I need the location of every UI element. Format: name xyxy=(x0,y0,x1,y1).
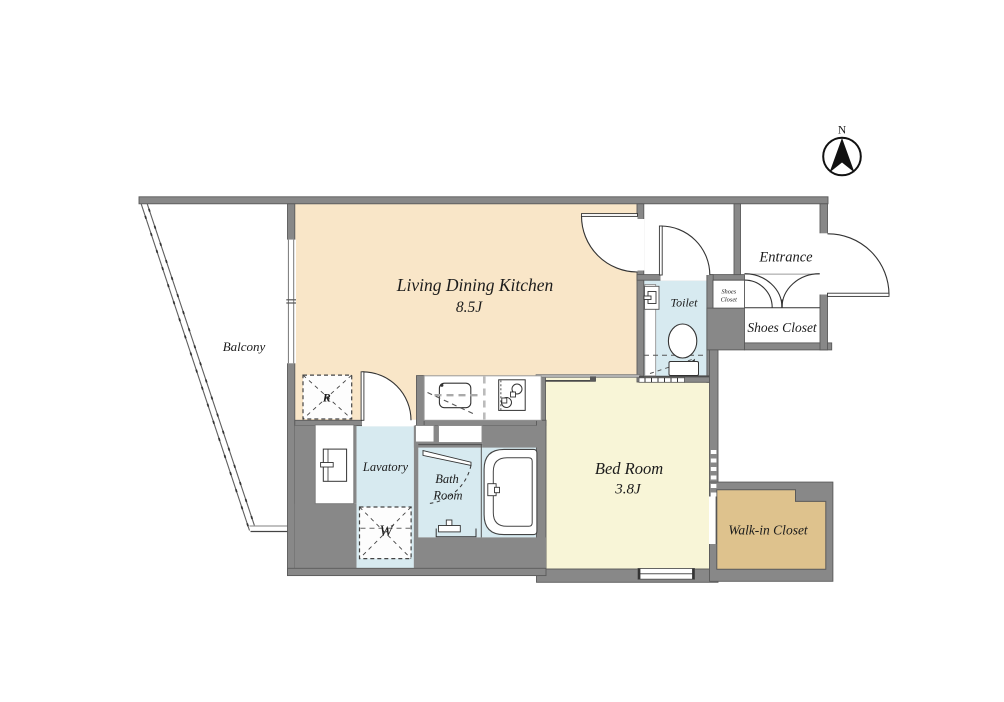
svg-text:R: R xyxy=(322,391,331,405)
svg-text:Lavatory: Lavatory xyxy=(362,460,409,474)
svg-text:3.8J: 3.8J xyxy=(614,482,642,498)
svg-text:Balcony: Balcony xyxy=(223,339,266,354)
svg-text:N: N xyxy=(838,125,847,137)
svg-text:Entrance: Entrance xyxy=(758,250,813,266)
svg-text:Living Dining Kitchen: Living Dining Kitchen xyxy=(396,275,554,295)
svg-text:Shoes: Shoes xyxy=(721,289,736,296)
svg-text:Room: Room xyxy=(432,489,462,503)
svg-text:Toilet: Toilet xyxy=(671,296,699,310)
svg-text:Bed Room: Bed Room xyxy=(595,459,663,478)
svg-text:W: W xyxy=(379,523,394,540)
svg-text:Shoes Closet: Shoes Closet xyxy=(747,320,818,335)
svg-text:8.5J: 8.5J xyxy=(456,299,483,316)
svg-text:Walk-in Closet: Walk-in Closet xyxy=(728,523,809,538)
svg-text:Closet: Closet xyxy=(721,297,738,304)
svg-text:Bath: Bath xyxy=(435,472,459,486)
